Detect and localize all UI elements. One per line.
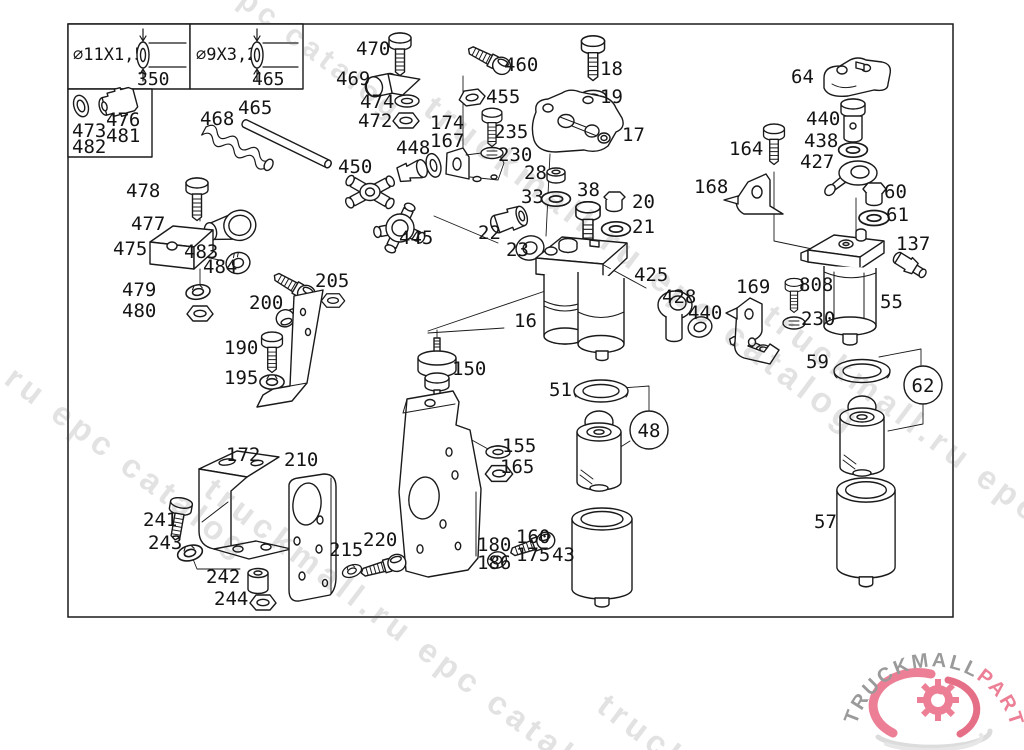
part-drawing-18 [581, 36, 604, 81]
part-drawing-455 [458, 88, 486, 106]
part-drawing-230-left [481, 148, 503, 159]
part-drawing-51-seal [574, 380, 628, 402]
part-drawing-48-element [577, 411, 621, 491]
part-drawing-235 [482, 108, 502, 146]
part-drawing-28 [547, 168, 565, 183]
part-drawing-450 [344, 174, 396, 210]
part-drawing-478 [186, 178, 208, 221]
gear-icon [917, 679, 959, 721]
part-drawing-242-spacer [248, 569, 268, 594]
part-drawing-33 [542, 192, 571, 206]
part-drawing-21 [602, 222, 631, 236]
part-drawing-137-sensor [890, 249, 929, 282]
part-drawing-22 [488, 204, 530, 236]
part-drawing-425 [658, 291, 692, 342]
part-drawing-20 [604, 192, 625, 212]
part-drawing-428 [686, 314, 714, 340]
part-drawing-243 [176, 543, 204, 564]
part-drawing-165 [485, 466, 512, 482]
part-drawing-17-cover [532, 90, 623, 152]
part-drawing-190 [262, 332, 283, 372]
part-drawing-62-element [840, 396, 884, 476]
part-drawing-480 [187, 306, 213, 321]
part-drawing-59-seal [834, 360, 890, 383]
part-drawing-808 [785, 278, 803, 312]
part-drawing-16-filter-head [536, 237, 627, 361]
spec-dim-2: ⌀9X3,2 [196, 45, 257, 65]
spec-part-1: 350 [137, 69, 170, 90]
parts-diagram-page: ⌀11X1,5 350 ⌀9X3,2 465 [0, 0, 1024, 750]
part-drawing-main-bracket [399, 391, 481, 577]
part-drawing-244 [250, 595, 276, 610]
part-drawing-57-canister [837, 478, 895, 587]
part-drawing-479 [185, 283, 211, 301]
balloon-62: 62 [904, 366, 942, 404]
balloon-48: 48 [630, 411, 668, 449]
part-drawing-43-canister [572, 508, 632, 607]
part-drawing-180-186 [485, 549, 508, 570]
part-drawing-460 [465, 41, 514, 77]
part-drawing-164 [764, 124, 785, 164]
part-drawing-64-casting [824, 58, 890, 96]
part-drawing-210-plate [289, 474, 336, 601]
spec-box-seals [68, 85, 152, 157]
part-drawing-bracket-strip [257, 290, 323, 407]
part-drawing-205 [321, 294, 344, 308]
part-drawing-215 [341, 562, 364, 580]
part-drawing-474 [395, 95, 419, 107]
part-drawing-60 [863, 183, 886, 206]
spec-box-tube-465: ⌀9X3,2 465 [190, 24, 303, 90]
part-drawing-172-bracket [199, 451, 291, 559]
part-drawing-220 [359, 552, 408, 581]
part-drawing-472 [393, 113, 419, 128]
part-drawing-438 [839, 143, 868, 157]
part-drawing-445 [373, 202, 426, 255]
spec-box-tube-350: ⌀11X1,5 350 [68, 24, 190, 90]
balloon-48-number: 48 [638, 420, 661, 442]
part-drawing-169-bracket [726, 298, 779, 364]
diagram-canvas: ⌀11X1,5 350 ⌀9X3,2 465 [0, 0, 1024, 750]
part-drawing-61 [859, 211, 889, 226]
spec-dim-1: ⌀11X1,5 [73, 45, 145, 65]
part-drawing-448 [396, 152, 444, 186]
part-drawing-55-housing [801, 229, 884, 345]
part-drawing-230-right [783, 317, 805, 329]
part-drawing-475 [150, 226, 213, 269]
part-drawing-155 [486, 446, 510, 458]
part-drawing-160-175 [508, 530, 557, 561]
part-drawing-483 [224, 250, 253, 276]
balloon-62-number: 62 [912, 375, 935, 397]
part-drawing-241 [164, 496, 193, 542]
spec-part-2: 465 [252, 69, 285, 90]
part-drawing-470 [389, 33, 411, 76]
part-drawing-440-right [841, 99, 865, 142]
